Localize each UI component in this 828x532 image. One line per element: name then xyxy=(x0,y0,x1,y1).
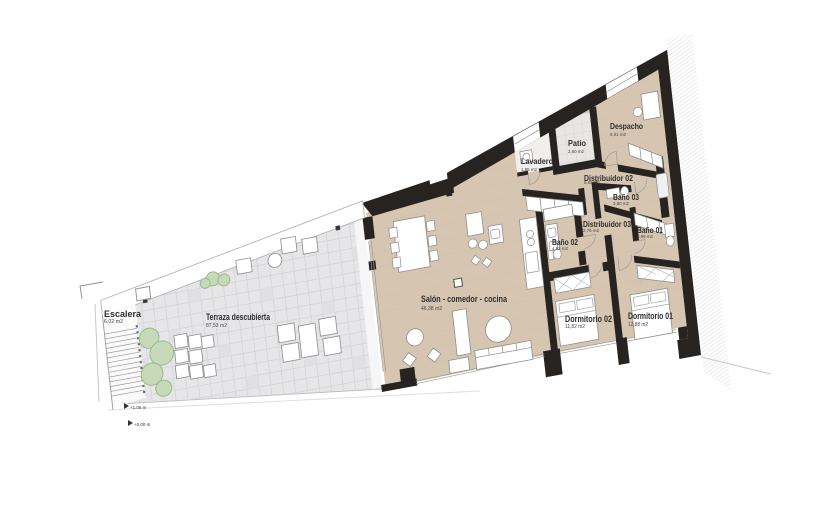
svg-text:3,99 m2: 3,99 m2 xyxy=(637,234,653,239)
svg-text:87,53 m2: 87,53 m2 xyxy=(206,323,227,329)
svg-text:Lavadero: Lavadero xyxy=(521,157,553,166)
svg-text:Despacho: Despacho xyxy=(610,122,643,131)
svg-text:+0,00 m: +0,00 m xyxy=(134,422,151,427)
svg-text:1,85 m2: 1,85 m2 xyxy=(521,167,537,172)
svg-text:3,80 m2: 3,80 m2 xyxy=(613,201,629,206)
svg-text:Patio: Patio xyxy=(568,139,586,148)
svg-text:2,75 m2: 2,75 m2 xyxy=(583,228,599,233)
svg-text:12,88 m2: 12,88 m2 xyxy=(628,322,648,328)
svg-text:Salón - comedor - cocina: Salón - comedor - cocina xyxy=(421,294,508,305)
svg-text:5,09 m2: 5,09 m2 xyxy=(584,180,600,185)
svg-text:11,82 m2: 11,82 m2 xyxy=(565,324,585,330)
svg-text:Dormitorio 02: Dormitorio 02 xyxy=(565,314,612,324)
svg-text:3,60 m2: 3,60 m2 xyxy=(568,149,584,154)
svg-text:46,38 m2: 46,38 m2 xyxy=(421,306,442,312)
svg-text:4,52 m2: 4,52 m2 xyxy=(552,246,568,251)
svg-text:9,01 m2: 9,01 m2 xyxy=(610,132,626,137)
svg-text:+1,06 m: +1,06 m xyxy=(130,405,147,410)
svg-text:Terraza descubierta: Terraza descubierta xyxy=(206,312,271,323)
svg-text:6,02 m2: 6,02 m2 xyxy=(104,319,123,325)
svg-text:Dormitorio 01: Dormitorio 01 xyxy=(628,311,673,321)
